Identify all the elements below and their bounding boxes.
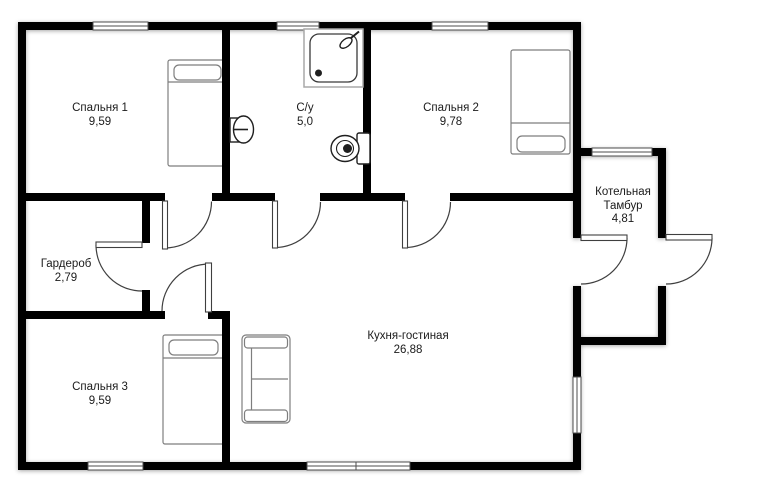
room-name: Спальня 2 (423, 102, 479, 114)
room-area: 2,79 (55, 272, 77, 284)
room-area: 9,59 (89, 116, 111, 128)
room-name: С/у (296, 102, 314, 114)
wall-segment (222, 30, 230, 201)
window-icon (307, 462, 410, 470)
window-icon (592, 148, 652, 156)
room-name-2: Тамбур (603, 200, 642, 212)
plan-background (0, 0, 762, 502)
room-name: Котельная (595, 186, 651, 198)
wall-segment (18, 311, 165, 319)
bed-icon (163, 335, 224, 444)
floor-plan: Спальня 1 9,59 С/у 5,0 Спальня 2 9,78 Ко… (0, 0, 762, 502)
wall-segment (26, 193, 165, 201)
bed-pillow (517, 136, 565, 152)
wall-segment (581, 337, 666, 345)
bed-icon (511, 50, 570, 154)
sofa-armrest (245, 410, 288, 422)
room-name: Кухня-гостиная (367, 330, 448, 342)
room-area: 9,59 (89, 395, 111, 407)
wall-segment (658, 286, 666, 345)
window-icon (432, 22, 488, 30)
floor-plan-canvas: Спальня 1 9,59 С/у 5,0 Спальня 2 9,78 Ко… (0, 0, 762, 502)
wall-segment (142, 201, 150, 243)
wall-segment (212, 193, 275, 201)
bed-icon (168, 60, 227, 166)
room-name: Спальня 1 (72, 102, 128, 114)
sofa-icon (242, 335, 290, 423)
wall-segment (320, 193, 405, 201)
room-area: 4,81 (612, 213, 634, 225)
wall-segment (222, 311, 230, 470)
shower-icon (304, 29, 363, 87)
shower-drain (315, 70, 322, 77)
sofa-armrest (245, 337, 288, 348)
room-name: Гардероб (41, 258, 92, 270)
window-icon (93, 22, 148, 30)
wall-segment (18, 22, 26, 470)
wall-segment (450, 193, 573, 201)
room-name: Спальня 3 (72, 381, 128, 393)
bed-pillow (169, 340, 218, 355)
toilet-icon (331, 133, 370, 164)
sink-icon (230, 116, 254, 143)
wall-segment (658, 148, 666, 238)
room-area: 26,88 (394, 344, 423, 356)
room-area: 9,78 (440, 116, 462, 128)
toilet-flush (343, 144, 352, 153)
wall-segment (573, 22, 581, 238)
bed-pillow (174, 65, 221, 80)
wall-segment (363, 30, 371, 201)
room-area: 5,0 (297, 116, 313, 128)
window-icon (573, 377, 581, 433)
window-icon (88, 462, 143, 470)
